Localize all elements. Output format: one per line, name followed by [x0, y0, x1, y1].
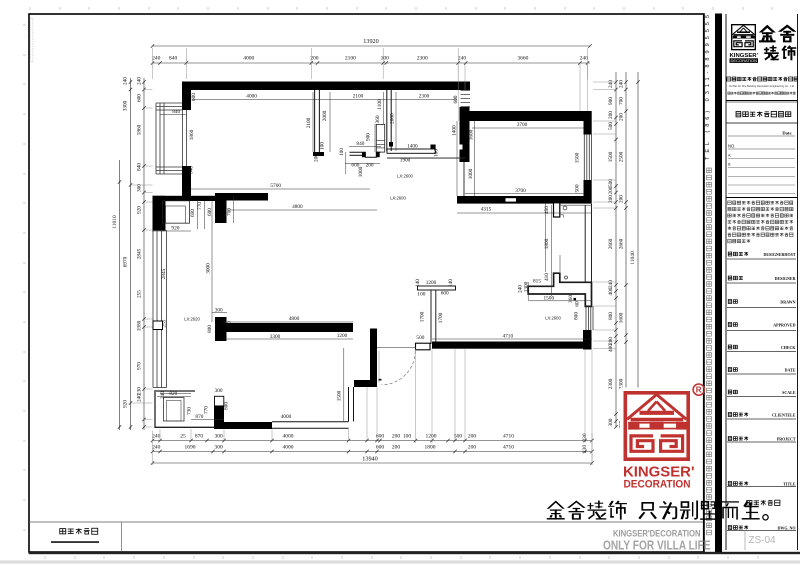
svg-text:DWG. NO: DWG. NO	[778, 526, 796, 531]
svg-text:450: 450	[544, 206, 550, 214]
svg-text:1400: 1400	[407, 144, 418, 150]
svg-text:NO.: NO.	[728, 144, 735, 149]
svg-text:4710: 4710	[503, 434, 514, 440]
svg-text:100: 100	[417, 292, 425, 298]
svg-text:DESIGNERHOST: DESIGNERHOST	[763, 252, 795, 257]
svg-text:A:: A:	[728, 154, 731, 158]
svg-text:PROJECT: PROJECT	[777, 437, 796, 442]
svg-text:300: 300	[214, 445, 223, 451]
svg-text:2300: 2300	[608, 378, 614, 389]
svg-text:600: 600	[191, 93, 197, 101]
svg-text:4000: 4000	[243, 56, 254, 62]
svg-text:1400: 1400	[451, 125, 457, 136]
svg-text:100: 100	[339, 148, 345, 156]
svg-text:100: 100	[381, 56, 390, 62]
svg-text:970: 970	[137, 362, 143, 370]
svg-text:240: 240	[123, 77, 129, 85]
svg-text:1860: 1860	[137, 124, 143, 135]
svg-text:LX:2620: LX:2620	[184, 317, 200, 322]
svg-text:200: 200	[310, 56, 319, 62]
svg-text:240: 240	[152, 445, 161, 451]
svg-text:2100: 2100	[306, 117, 312, 128]
svg-text:1000: 1000	[358, 166, 364, 177]
svg-text:900: 900	[608, 97, 614, 105]
svg-text:300: 300	[214, 434, 223, 440]
svg-text:400: 400	[608, 287, 614, 295]
svg-text:DRAWN: DRAWN	[780, 300, 795, 305]
svg-text:200: 200	[468, 434, 477, 440]
svg-text:255: 255	[137, 290, 143, 298]
svg-text:4000: 4000	[283, 445, 294, 451]
svg-text:200: 200	[392, 434, 401, 440]
svg-text:1200: 1200	[426, 280, 437, 286]
svg-text:240: 240	[619, 80, 625, 88]
svg-text:LX:2600: LX:2600	[397, 174, 413, 179]
svg-text:800: 800	[608, 312, 614, 320]
svg-text:255: 255	[162, 319, 168, 327]
svg-text:2845: 2845	[137, 248, 143, 259]
svg-text:840: 840	[188, 166, 194, 174]
svg-text:1700: 1700	[438, 312, 444, 323]
svg-text:ZS-04: ZS-04	[748, 535, 776, 546]
svg-text:500: 500	[574, 184, 580, 192]
svg-text:CHECK: CHECK	[781, 345, 797, 350]
svg-text:2500: 2500	[619, 151, 625, 162]
svg-text:1000: 1000	[468, 168, 474, 179]
svg-text:4710: 4710	[503, 445, 514, 451]
svg-text:1500: 1500	[574, 152, 580, 163]
svg-text:4000: 4000	[246, 94, 257, 100]
svg-text:4710: 4710	[503, 334, 514, 340]
svg-text:2845: 2845	[161, 268, 167, 279]
svg-text:5700: 5700	[270, 183, 281, 189]
svg-text:400: 400	[608, 344, 614, 352]
svg-text:2300: 2300	[419, 94, 430, 100]
svg-text:LX:2600: LX:2600	[390, 196, 406, 201]
svg-text:11010: 11010	[112, 215, 118, 229]
svg-text:SCALE: SCALE	[782, 390, 796, 395]
svg-text:820: 820	[169, 391, 177, 397]
svg-text:240: 240	[152, 56, 161, 62]
svg-text:690: 690	[190, 209, 196, 217]
svg-text:815: 815	[533, 279, 541, 285]
svg-text:600: 600	[376, 445, 385, 451]
svg-text:4800: 4800	[289, 316, 300, 322]
svg-text:360: 360	[375, 115, 381, 123]
svg-text:1500: 1500	[337, 390, 343, 401]
svg-text:1690: 1690	[185, 445, 196, 451]
svg-text:2300: 2300	[417, 56, 428, 62]
svg-text:3700: 3700	[515, 188, 526, 194]
svg-text:4315: 4315	[481, 207, 492, 213]
svg-text:230: 230	[137, 387, 143, 395]
svg-text:1500: 1500	[608, 151, 614, 162]
svg-text:3660: 3660	[517, 56, 528, 62]
svg-text:770: 770	[197, 202, 203, 210]
svg-text:140: 140	[448, 279, 454, 287]
svg-text:3300: 3300	[123, 100, 129, 111]
svg-text:1700: 1700	[419, 311, 425, 322]
svg-text:2660: 2660	[619, 238, 625, 249]
svg-text:300: 300	[215, 388, 223, 394]
svg-text:1900: 1900	[400, 158, 411, 164]
svg-text:500: 500	[416, 335, 424, 341]
svg-text:360: 360	[568, 295, 574, 303]
svg-text:1500: 1500	[544, 296, 555, 302]
svg-text:1100: 1100	[377, 99, 383, 110]
svg-text:800: 800	[574, 312, 580, 320]
svg-text:2660: 2660	[608, 238, 614, 249]
svg-text:920: 920	[171, 226, 179, 232]
svg-text:200: 200	[619, 113, 625, 121]
svg-text:13920: 13920	[363, 38, 378, 45]
svg-text:840: 840	[356, 141, 364, 147]
svg-text:730: 730	[187, 407, 193, 415]
svg-text:240: 240	[152, 434, 161, 440]
svg-text:300: 300	[227, 321, 233, 329]
svg-text:840: 840	[169, 56, 178, 62]
svg-text:DATE: DATE	[785, 368, 796, 373]
svg-text:240: 240	[608, 280, 614, 288]
svg-text:1800: 1800	[425, 445, 436, 451]
svg-text:1800: 1800	[544, 238, 550, 249]
svg-text:2100: 2100	[345, 56, 356, 62]
svg-text:920: 920	[123, 400, 129, 408]
svg-text:200: 200	[608, 195, 614, 203]
svg-text:4000: 4000	[281, 414, 292, 420]
svg-text:LX:2600: LX:2600	[545, 316, 561, 321]
svg-text:700: 700	[227, 208, 233, 216]
svg-text:ONLY FOR VILLA LIFE: ONLY FOR VILLA LIFE	[603, 538, 711, 553]
svg-text:840: 840	[172, 109, 180, 115]
svg-text:920: 920	[137, 206, 143, 214]
svg-text:2000: 2000	[322, 110, 328, 121]
svg-text:600: 600	[207, 208, 213, 216]
svg-text:600: 600	[453, 95, 459, 103]
svg-text:100: 100	[320, 142, 326, 150]
svg-text:3000: 3000	[205, 263, 211, 274]
svg-text:800: 800	[224, 402, 230, 410]
svg-text:900: 900	[366, 133, 372, 141]
svg-text:TEL (86) 0311-88995555: TEL (86) 0311-88995555	[705, 15, 711, 160]
svg-text:100: 100	[434, 149, 440, 157]
svg-text:410: 410	[544, 273, 550, 281]
svg-text:240: 240	[580, 56, 589, 62]
svg-text:100: 100	[403, 434, 412, 440]
svg-text:200: 200	[366, 163, 374, 169]
svg-text:25: 25	[180, 434, 186, 440]
svg-text:240: 240	[458, 56, 467, 62]
svg-text:230: 230	[160, 223, 166, 231]
svg-text:3700: 3700	[517, 122, 528, 128]
svg-text:13940: 13940	[362, 456, 377, 463]
svg-text:700: 700	[619, 97, 625, 105]
svg-text:500: 500	[608, 122, 614, 130]
svg-text:240: 240	[160, 391, 166, 399]
svg-text:11040: 11040	[630, 251, 636, 265]
svg-text:1200: 1200	[337, 333, 348, 339]
svg-text:840: 840	[137, 163, 143, 171]
svg-text:1300: 1300	[524, 281, 530, 292]
svg-text:300: 300	[608, 418, 614, 426]
svg-text:4000: 4000	[283, 434, 294, 440]
svg-text:6970: 6970	[123, 256, 129, 267]
svg-text:600: 600	[441, 291, 449, 297]
svg-text:600: 600	[137, 94, 143, 102]
svg-text:1980: 1980	[137, 320, 143, 331]
svg-text:240: 240	[608, 80, 614, 88]
svg-text:TITLE: TITLE	[783, 482, 796, 487]
svg-text:200: 200	[468, 445, 477, 451]
svg-text:1600: 1600	[619, 312, 625, 323]
svg-text:140: 140	[415, 279, 421, 287]
svg-text:2100: 2100	[353, 94, 364, 100]
svg-text:240: 240	[517, 285, 523, 293]
svg-text:240: 240	[137, 394, 143, 402]
svg-text:CLIENTELE: CLIENTELE	[772, 413, 796, 418]
svg-text:870: 870	[195, 434, 204, 440]
svg-text:300: 300	[215, 308, 223, 314]
svg-text:870: 870	[195, 414, 203, 420]
svg-text:240: 240	[137, 77, 143, 85]
svg-text:1600: 1600	[468, 129, 474, 140]
svg-text:770: 770	[204, 406, 210, 414]
svg-text:DECORATION: DECORATION	[731, 59, 758, 63]
svg-text:4800: 4800	[292, 204, 303, 210]
svg-text:1200: 1200	[426, 434, 437, 440]
svg-text:He Bei Jin She Building Decora: He Bei Jin She Building Decoration Engin…	[729, 84, 794, 88]
svg-text:200: 200	[608, 111, 614, 119]
svg-text:200: 200	[314, 154, 320, 162]
svg-text:1860: 1860	[189, 129, 195, 140]
svg-text:KINGSER': KINGSER'	[730, 53, 759, 59]
svg-text:800: 800	[207, 325, 213, 333]
svg-text:DESIGNER: DESIGNER	[775, 276, 796, 281]
svg-text:2000: 2000	[390, 113, 396, 124]
svg-text:DECORATION: DECORATION	[624, 479, 691, 491]
svg-text:Date: Date	[782, 131, 791, 136]
svg-text:R: R	[696, 386, 702, 395]
svg-text:200: 200	[608, 186, 614, 194]
svg-text:3300: 3300	[270, 334, 281, 340]
svg-text:APPROVED: APPROVED	[773, 323, 795, 328]
svg-text:200: 200	[619, 195, 625, 203]
svg-text:B:: B:	[728, 163, 731, 167]
svg-text:200: 200	[392, 445, 401, 451]
svg-text:60: 60	[574, 301, 580, 307]
